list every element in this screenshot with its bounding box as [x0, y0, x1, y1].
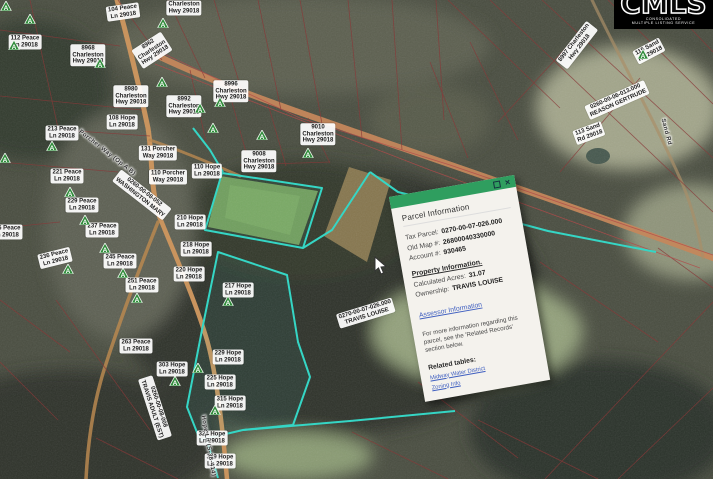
mouse-cursor-icon — [374, 256, 388, 276]
map-address-label: 220 Hope Ln 29018 — [174, 267, 205, 282]
address-marker-icon[interactable]: A — [63, 261, 74, 279]
svg-text:A: A — [160, 81, 165, 87]
map-address-label: 221 Peace Ln 29018 — [50, 169, 83, 184]
svg-text:A: A — [196, 367, 201, 373]
svg-text:A: A — [218, 101, 223, 107]
address-marker-icon[interactable]: A — [158, 15, 169, 33]
svg-text:A: A — [103, 247, 108, 253]
map-labels-layer: 104 Peace Ln 29018112 Peace Ln 290188968… — [0, 0, 713, 479]
svg-text:A: A — [50, 145, 55, 151]
svg-text:A: A — [68, 191, 73, 197]
svg-text:A: A — [306, 152, 311, 158]
map-address-label: 0260-00-08-008 TRAVIS ADULT (EST) — [138, 375, 172, 441]
svg-text:A: A — [213, 409, 218, 415]
map-address-label: 225 Hope Ln 29018 — [205, 375, 236, 390]
svg-text:A: A — [198, 107, 203, 113]
svg-text:A: A — [226, 300, 231, 306]
address-marker-icon[interactable]: A — [193, 360, 204, 378]
address-marker-icon[interactable]: A — [223, 293, 234, 311]
address-marker-icon[interactable]: A — [0, 150, 11, 168]
map-address-label: 131 Porcher Way 29018 — [139, 146, 177, 161]
svg-text:A: A — [3, 157, 8, 163]
address-marker-icon[interactable]: A — [25, 11, 36, 29]
map-address-label: 0270-00-07-026.000 TRAVIS LOUISE — [336, 297, 396, 328]
map-address-label: 104 Peace Ln 29018 — [106, 2, 141, 21]
street-name-label: Porcher Way (Op A B) — [78, 129, 137, 177]
address-marker-icon[interactable]: A — [170, 373, 181, 391]
svg-text:A: A — [28, 18, 33, 24]
svg-text:A: A — [161, 22, 166, 28]
svg-text:A: A — [211, 127, 216, 133]
svg-text:A: A — [121, 272, 126, 278]
address-marker-icon[interactable]: A — [257, 127, 268, 145]
address-marker-icon[interactable]: A — [47, 138, 58, 156]
map-address-label: 108 Hope Ln 29018 — [107, 115, 138, 130]
map-address-label: 255 Peace Ln 29018 — [0, 225, 23, 240]
map-address-label: 9008 Charleston Hwy 29018 — [241, 150, 276, 172]
map-address-label: 0260-00-06-013.000 REASON GERTRUDE — [584, 80, 649, 120]
map-address-label: 113 Sand Rd 29018 — [572, 121, 606, 145]
svg-text:A: A — [135, 297, 140, 303]
gis-map-view: 104 Peace Ln 29018112 Peace Ln 290188968… — [0, 0, 713, 479]
map-address-label: 8962 Charleston Hwy 29018 — [131, 31, 172, 68]
map-address-label: 324 Hope Ln 29018 — [197, 431, 228, 446]
map-address-label: 218 Hope Ln 29018 — [181, 242, 212, 257]
svg-text:A: A — [66, 268, 71, 274]
map-address-label: 210 Hope Ln 29018 — [175, 215, 206, 230]
close-icon[interactable]: × — [504, 177, 511, 187]
address-marker-icon[interactable]: A — [65, 184, 76, 202]
svg-text:A: A — [98, 62, 103, 68]
svg-text:A: A — [173, 380, 178, 386]
address-marker-icon[interactable]: A — [303, 145, 314, 163]
address-marker-icon[interactable]: A — [9, 37, 20, 55]
map-address-label: 110 Hope Ln 29018 — [192, 164, 222, 179]
map-address-label: 8980 Charleston Hwy 29018 — [113, 85, 148, 107]
map-address-label: 229 Hope Ln 29018 — [213, 350, 244, 365]
popout-icon[interactable] — [493, 180, 501, 188]
street-name-label: Hope Ln (S-38-414) — [200, 415, 217, 477]
address-marker-icon[interactable]: A — [80, 212, 91, 230]
cmls-logo-text: CMLS — [614, 0, 713, 17]
address-marker-icon[interactable]: A — [157, 74, 168, 92]
address-marker-icon[interactable]: A — [210, 402, 221, 420]
address-marker-icon[interactable]: A — [100, 240, 111, 258]
map-address-label: 8997 Charleston Hwy 29018 — [556, 21, 599, 70]
map-address-label: 263 Peace Ln 29018 — [119, 339, 152, 354]
assessor-information-link[interactable]: Assessor Information — [418, 301, 482, 319]
svg-text:A: A — [12, 44, 17, 50]
address-marker-icon[interactable]: A — [208, 120, 219, 138]
address-marker-icon[interactable]: A — [215, 94, 226, 112]
svg-text:A: A — [83, 219, 88, 225]
address-marker-icon[interactable]: A — [195, 100, 206, 118]
map-address-label: 9010 Charleston Hwy 29018 — [300, 123, 335, 145]
svg-text:A: A — [260, 134, 265, 140]
street-name-label: Sand Rd — [660, 118, 673, 146]
map-address-label: Charleston Hwy 29018 — [166, 1, 201, 16]
address-marker-icon[interactable]: A — [118, 265, 129, 283]
address-marker-icon[interactable]: A — [638, 46, 649, 64]
map-address-label: 110 Porcher Way 29018 — [149, 170, 187, 185]
svg-text:A: A — [4, 5, 9, 11]
svg-text:A: A — [641, 53, 646, 59]
address-marker-icon[interactable]: A — [95, 55, 106, 73]
cmls-logo: CMLS CONSOLIDATED MULTIPLE LISTING SERVI… — [614, 0, 713, 29]
address-marker-icon[interactable]: A — [1, 0, 12, 16]
address-marker-icon[interactable]: A — [132, 290, 143, 308]
